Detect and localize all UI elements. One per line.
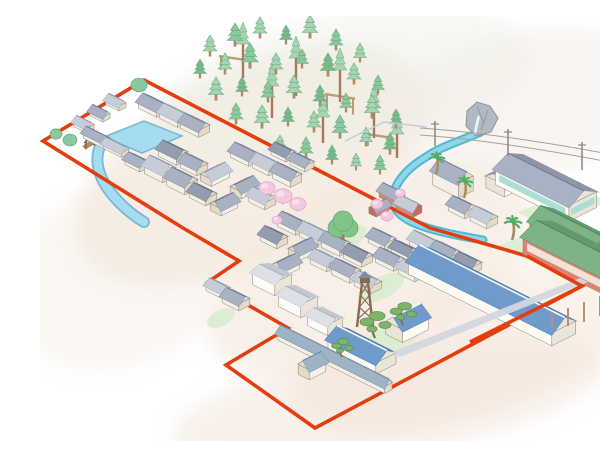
cherry-blossom-tree (371, 199, 383, 209)
cherry-blossom-tree (395, 189, 405, 198)
garden-bush (131, 78, 147, 92)
cherry-blossom-tree (381, 211, 393, 221)
cherry-blossom-tree (272, 216, 282, 225)
garden-bush (63, 134, 77, 146)
conifer-tree (203, 35, 217, 57)
studio-park-illustrated-map (40, 16, 600, 441)
park-map-canvas (40, 16, 600, 441)
garden-bush (50, 129, 62, 139)
